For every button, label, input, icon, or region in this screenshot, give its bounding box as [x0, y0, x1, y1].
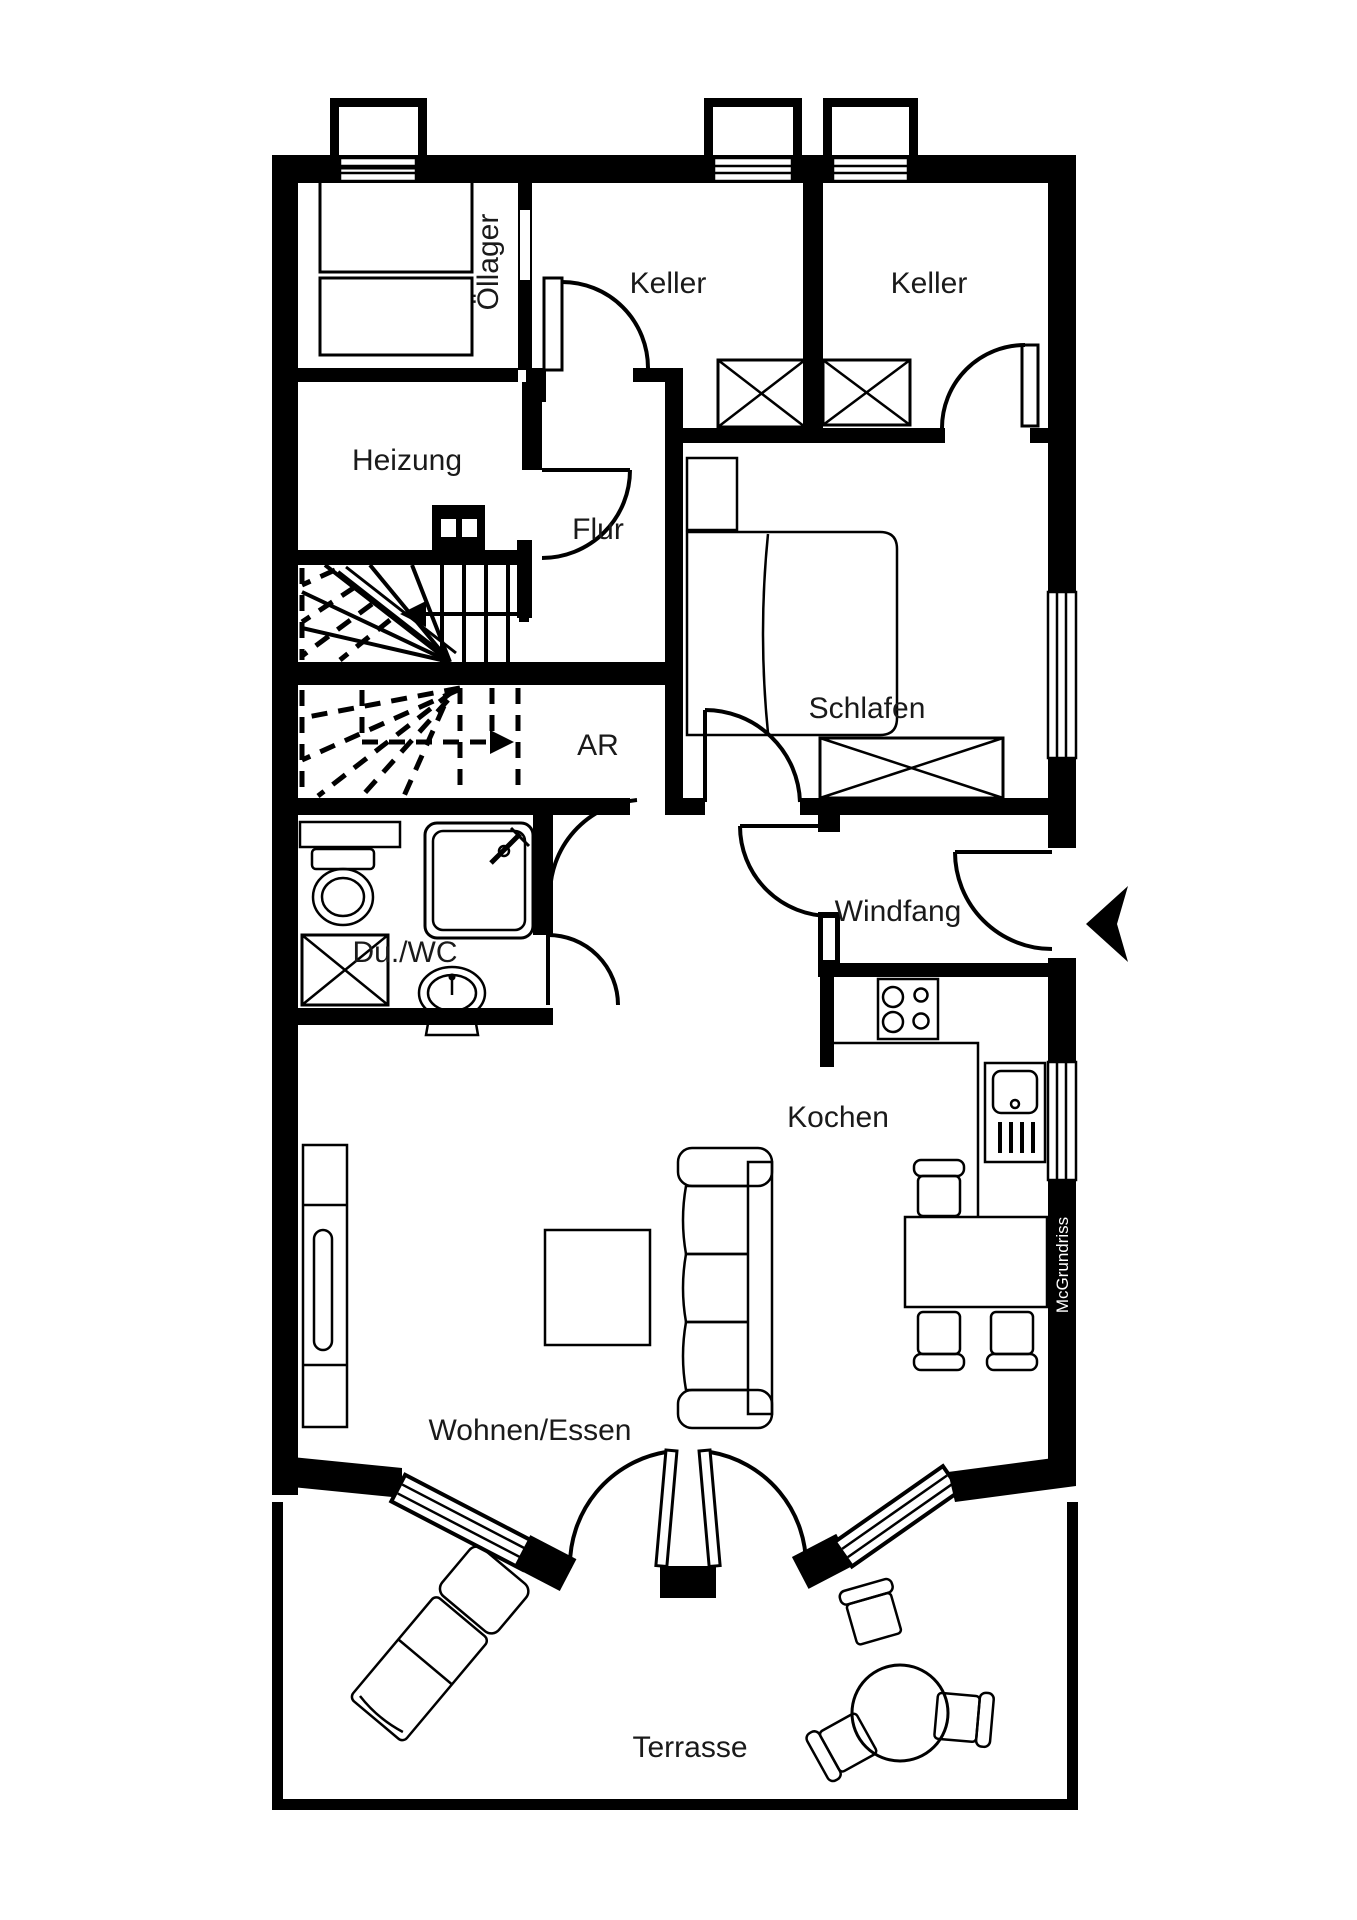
label-oellager: Öllager: [472, 214, 505, 311]
oil-tanks: [320, 168, 472, 355]
chimney: [432, 505, 485, 553]
label-ar: AR: [577, 729, 619, 762]
french-doors: [570, 1450, 806, 1598]
cellar-window-3: [833, 158, 908, 181]
label-duwc: Du./WC: [353, 936, 458, 969]
dining-chair-bottom-right: [987, 1312, 1037, 1370]
toilet: [312, 849, 374, 925]
entrance-opening: [1046, 848, 1078, 958]
shaft-box-keller-2: [823, 360, 910, 425]
kitchen-sink: [985, 1063, 1045, 1162]
label-wohnen-essen: Wohnen/Essen: [429, 1414, 632, 1447]
label-kochen: Kochen: [787, 1101, 889, 1134]
door-duwc: [548, 935, 618, 1005]
label-heizung: Heizung: [352, 444, 462, 477]
shaft-box-keller-1: [718, 360, 805, 427]
coffee-table: [545, 1230, 650, 1345]
door-keller-2: [942, 345, 1038, 428]
stove-hob: [878, 979, 938, 1039]
entrance-arrow-icon: [1086, 886, 1128, 962]
light-well-2: [704, 98, 802, 158]
cellar-window-2: [714, 158, 792, 181]
terrace-chair-1: [838, 1578, 905, 1647]
label-flur: Flur: [572, 513, 624, 546]
nightstand: [687, 458, 737, 530]
label-keller-1: Keller: [630, 267, 707, 300]
light-well-3: [823, 98, 918, 158]
stair-arrow-down-head: [490, 730, 514, 754]
window-schlafen: [1048, 592, 1076, 758]
wardrobe: [820, 738, 1003, 798]
terrace-chair-2: [934, 1689, 994, 1748]
door-schlafen: [705, 710, 800, 802]
dining-table: [905, 1217, 1047, 1307]
dining-chair-top: [914, 1160, 964, 1216]
floor-plan-page: Öllager Keller Keller Heizung Flur Schla…: [0, 0, 1357, 1920]
terrace-chair-3: [804, 1709, 879, 1783]
label-keller-2: Keller: [891, 267, 968, 300]
shower: [425, 823, 533, 938]
door-windfang: [740, 826, 830, 916]
watermark-mcgrundriss: McGrundriss: [1053, 1217, 1072, 1313]
label-terrasse: Terrasse: [632, 1731, 747, 1764]
label-schlafen: Schlafen: [809, 692, 926, 725]
dining-chair-bottom-left: [914, 1312, 964, 1370]
sofa: [678, 1148, 772, 1428]
stairs-lower-flight-dashed: [302, 688, 518, 796]
light-well-1: [330, 98, 427, 158]
door-entrance: [955, 852, 1052, 949]
window-kueche: [1048, 1062, 1076, 1180]
floor-plan-canvas: Öllager Keller Keller Heizung Flur Schla…: [0, 0, 1357, 1920]
stairs-upper-flight: [302, 565, 529, 662]
terrace-table: [852, 1665, 948, 1761]
sun-lounger: [347, 1542, 532, 1743]
sideboard: [303, 1145, 347, 1427]
label-windfang: Windfang: [835, 895, 962, 928]
